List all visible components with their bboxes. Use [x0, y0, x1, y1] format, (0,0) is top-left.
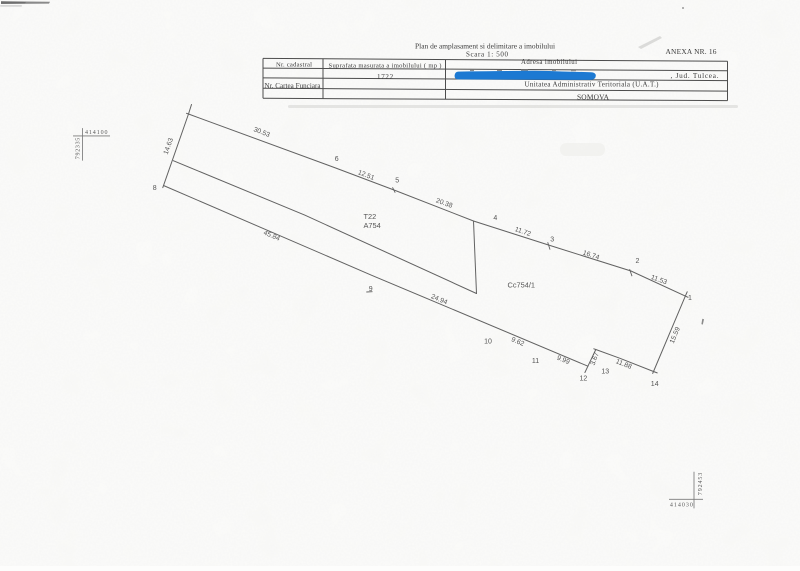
svg-text:13: 13 [601, 368, 609, 375]
svg-text:3: 3 [550, 237, 554, 244]
svg-text:6: 6 [335, 156, 339, 163]
svg-text:Suprafata masurata a imobilulu: Suprafata masurata a imobilului ( mp ) [329, 62, 442, 69]
svg-text:Adresa imobilului: Adresa imobilului [521, 59, 577, 66]
svg-text:Plan de amplasament si delimit: Plan de amplasament si delimitare a imob… [415, 42, 555, 51]
svg-text:A754: A754 [364, 221, 381, 230]
svg-text:4: 4 [493, 215, 497, 222]
svg-text:1722: 1722 [377, 73, 394, 81]
svg-text:414100: 414100 [85, 130, 108, 136]
svg-text:ANEXA NR. 16: ANEXA NR. 16 [666, 47, 717, 56]
svg-text:11: 11 [532, 358, 539, 365]
svg-text:792335: 792335 [76, 138, 82, 160]
svg-text:5: 5 [395, 177, 399, 184]
svg-text:, Jud. Tulcea.: , Jud. Tulcea. [671, 72, 719, 80]
svg-text:12: 12 [580, 376, 588, 383]
svg-text:Scara 1: 500: Scara 1: 500 [466, 51, 509, 59]
svg-text:1: 1 [688, 295, 692, 302]
svg-text:792453: 792453 [698, 473, 704, 496]
svg-text:T22: T22 [364, 212, 377, 221]
svg-text:2: 2 [636, 258, 640, 265]
svg-text:Cc754/1: Cc754/1 [508, 281, 536, 290]
svg-text:10: 10 [484, 338, 492, 345]
svg-text:14: 14 [651, 381, 659, 388]
svg-text:Nr. cadastral: Nr. cadastral [276, 62, 312, 69]
svg-text:SOMOVA: SOMOVA [577, 93, 610, 102]
svg-text:9: 9 [369, 286, 373, 293]
svg-text:Nr. Cartea Funciara: Nr. Cartea Funciara [265, 82, 322, 90]
svg-text:414030: 414030 [670, 503, 693, 509]
svg-text:8: 8 [153, 185, 157, 192]
svg-text:Unitatea Administrativ Teritor: Unitatea Administrativ Teritoriala (U.A.… [525, 81, 660, 89]
